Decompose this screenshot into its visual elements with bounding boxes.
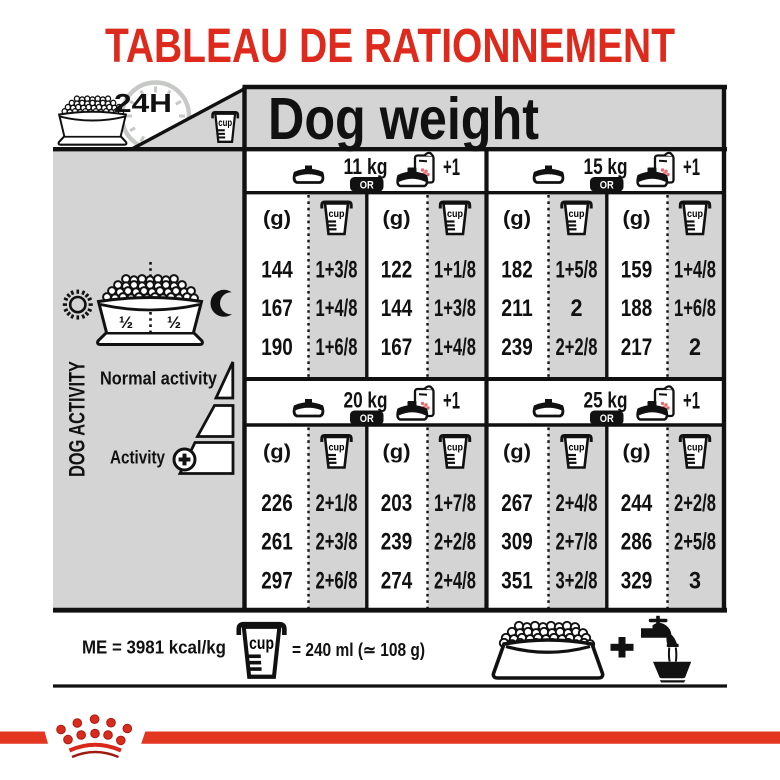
svg-text:244: 244 <box>621 490 653 517</box>
svg-text:182: 182 <box>501 257 533 284</box>
svg-text:+1: +1 <box>443 154 460 181</box>
svg-text:Normal activity: Normal activity <box>100 368 218 389</box>
svg-text:2+6/8: 2+6/8 <box>316 567 358 594</box>
svg-text:1+7/8: 1+7/8 <box>434 490 476 517</box>
svg-text:(g): (g) <box>263 208 291 230</box>
svg-text:1+1/8: 1+1/8 <box>434 257 476 284</box>
svg-text:2+7/8: 2+7/8 <box>556 529 598 556</box>
svg-text:(g): (g) <box>383 208 411 230</box>
svg-text:2: 2 <box>571 295 583 322</box>
svg-text:122: 122 <box>381 257 413 284</box>
svg-text:OR: OR <box>360 179 374 191</box>
svg-text:286: 286 <box>621 529 653 556</box>
svg-text:OR: OR <box>360 413 374 425</box>
svg-text:11 kg: 11 kg <box>344 154 388 179</box>
svg-text:(g): (g) <box>503 208 531 230</box>
svg-text:OR: OR <box>600 413 614 425</box>
svg-text:DOG ACTIVITY: DOG ACTIVITY <box>65 361 90 477</box>
svg-text:OR: OR <box>600 179 614 191</box>
svg-text:2+3/8: 2+3/8 <box>316 529 358 556</box>
svg-text:(g): (g) <box>623 208 651 230</box>
svg-text:1+4/8: 1+4/8 <box>316 295 358 322</box>
svg-text:2+5/8: 2+5/8 <box>674 529 716 556</box>
svg-text:159: 159 <box>621 257 653 284</box>
svg-text:ME = 3981 kcal/kg: ME = 3981 kcal/kg <box>82 638 226 658</box>
svg-text:20 kg: 20 kg <box>344 388 388 413</box>
svg-text:226: 226 <box>261 490 293 517</box>
svg-text:Dog weight: Dog weight <box>268 86 539 152</box>
svg-text:2+2/8: 2+2/8 <box>674 490 716 517</box>
svg-text:2+1/8: 2+1/8 <box>316 490 358 517</box>
svg-text:211: 211 <box>501 295 533 322</box>
svg-text:329: 329 <box>621 567 653 594</box>
svg-text:297: 297 <box>261 567 293 594</box>
svg-text:½: ½ <box>167 313 181 332</box>
svg-text:1+3/8: 1+3/8 <box>316 257 358 284</box>
svg-text:24H: 24H <box>114 88 172 118</box>
svg-text:1+4/8: 1+4/8 <box>674 257 716 284</box>
svg-text:2+4/8: 2+4/8 <box>556 490 598 517</box>
svg-text:(g): (g) <box>383 442 411 464</box>
svg-text:+1: +1 <box>683 154 700 181</box>
svg-text:144: 144 <box>261 257 293 284</box>
svg-text:239: 239 <box>501 334 533 361</box>
svg-text:239: 239 <box>381 529 413 556</box>
svg-text:25 kg: 25 kg <box>584 388 628 413</box>
svg-text:144: 144 <box>381 295 413 322</box>
svg-text:217: 217 <box>621 334 653 361</box>
svg-text:1+3/8: 1+3/8 <box>434 295 476 322</box>
svg-text:1+4/8: 1+4/8 <box>434 334 476 361</box>
svg-text:15 kg: 15 kg <box>584 154 628 179</box>
svg-text:3+2/8: 3+2/8 <box>556 567 598 594</box>
svg-text:3: 3 <box>689 567 701 594</box>
svg-text:+1: +1 <box>443 388 460 415</box>
svg-text:2+4/8: 2+4/8 <box>434 567 476 594</box>
svg-text:TABLEAU DE RATIONNEMENT: TABLEAU DE RATIONNEMENT <box>105 20 675 73</box>
svg-text:351: 351 <box>501 567 533 594</box>
svg-text:203: 203 <box>381 490 413 517</box>
svg-text:(g): (g) <box>263 442 291 464</box>
svg-text:309: 309 <box>501 529 533 556</box>
svg-text:½: ½ <box>119 313 133 332</box>
svg-text:188: 188 <box>621 295 653 322</box>
svg-text:274: 274 <box>381 567 413 594</box>
svg-text:Activity: Activity <box>110 447 166 468</box>
svg-text:= 240 ml (≃ 108 g): = 240 ml (≃ 108 g) <box>292 640 425 660</box>
svg-text:2: 2 <box>689 334 701 361</box>
svg-text:167: 167 <box>261 295 293 322</box>
svg-text:1+6/8: 1+6/8 <box>674 295 716 322</box>
svg-text:2+2/8: 2+2/8 <box>556 334 598 361</box>
svg-text:+1: +1 <box>683 388 700 415</box>
svg-text:(g): (g) <box>503 442 531 464</box>
svg-text:1+6/8: 1+6/8 <box>316 334 358 361</box>
svg-text:(g): (g) <box>623 442 651 464</box>
svg-text:190: 190 <box>261 334 293 361</box>
svg-text:167: 167 <box>381 334 413 361</box>
svg-text:261: 261 <box>261 529 293 556</box>
svg-text:267: 267 <box>501 490 533 517</box>
svg-text:2+2/8: 2+2/8 <box>434 529 476 556</box>
svg-text:1+5/8: 1+5/8 <box>556 257 598 284</box>
